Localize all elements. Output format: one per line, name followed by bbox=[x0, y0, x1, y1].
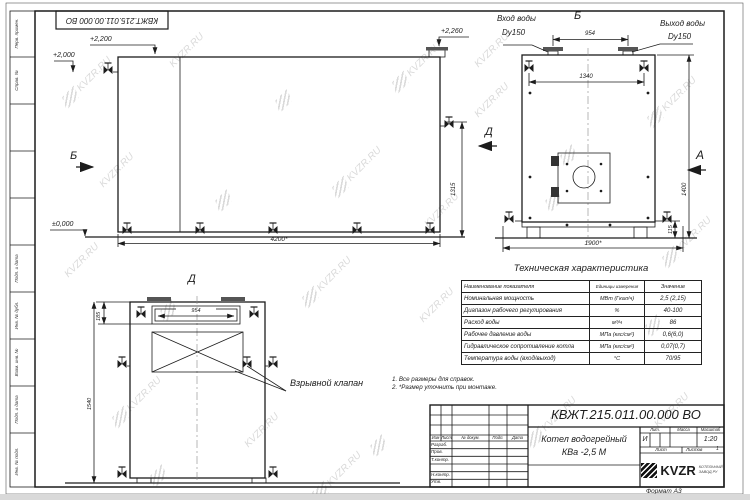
dim-1340: 1340 bbox=[561, 74, 611, 81]
dim-185: 185 bbox=[96, 312, 102, 321]
spec-header-cell: Наименование показателя bbox=[462, 281, 590, 293]
tb-row-tkontr: Т.контр. bbox=[431, 458, 449, 463]
section-label-b: Б bbox=[70, 150, 77, 162]
margin-label: Подп. и дата bbox=[14, 387, 19, 432]
spec-header-row: Наименование показателя Единицы измерени… bbox=[462, 281, 702, 293]
dim-1315: 1315 bbox=[451, 183, 458, 196]
elevation-2000: +2,000 bbox=[53, 52, 75, 60]
spec-cell: Диапазон рабочего регулирования bbox=[462, 305, 590, 317]
spec-row: Рабочее давление воды МПа (кгс/см²) 0,6(… bbox=[462, 329, 702, 341]
outlet-label-line2: Dy150 bbox=[668, 33, 691, 42]
dim-4200: 4200* bbox=[254, 236, 304, 243]
spec-row: Диапазон рабочего регулирования % 40-100 bbox=[462, 305, 702, 317]
spec-row: Температура воды (вход/выход) °С 70/95 bbox=[462, 353, 702, 365]
margin-label: Подп. и дата bbox=[14, 246, 19, 291]
spec-cell: 40-100 bbox=[645, 305, 702, 317]
note-1: 1. Все размеры для справок. bbox=[392, 377, 475, 384]
margin-label: Перв. примен. bbox=[14, 11, 19, 56]
spec-cell: Номинальная мощность bbox=[462, 293, 590, 305]
dim-115: 115 bbox=[668, 225, 674, 234]
kvzr-logo-subtext: КОТЕЛЬНЫЙ ЗАВОД.РУ bbox=[699, 465, 723, 474]
dim-954-rear: 954 bbox=[176, 308, 216, 314]
spec-cell: % bbox=[590, 305, 645, 317]
elevation-zero: ±0,000 bbox=[52, 221, 73, 229]
tb-row-razrab: Разраб. bbox=[431, 443, 447, 448]
dim-1900: 1900* bbox=[565, 240, 621, 247]
spec-row: Гидравлическое сопротивление котла МПа (… bbox=[462, 341, 702, 353]
title-block-doc-number: КВЖТ.215.011.00.000 ВО bbox=[528, 408, 724, 422]
dim-1540: 1540 bbox=[87, 398, 93, 410]
margin-label: Взам. инв. № bbox=[14, 340, 19, 385]
section-label-a: А bbox=[696, 149, 704, 162]
rear-view-title: Д bbox=[188, 273, 196, 285]
spec-cell: 70/95 bbox=[645, 353, 702, 365]
spec-cell: МВт (Гкал/ч) bbox=[590, 293, 645, 305]
spec-table: Наименование показателя Единицы измерени… bbox=[461, 280, 702, 365]
spec-cell: 0,6(6,0) bbox=[645, 329, 702, 341]
section-label-b-top: Б bbox=[574, 10, 581, 22]
kvzr-logo-icon bbox=[641, 463, 657, 478]
spec-cell: м³/ч bbox=[590, 317, 645, 329]
spec-cell: Расход воды bbox=[462, 317, 590, 329]
elevation-2200: +2,200 bbox=[90, 36, 112, 44]
spec-header-cell: Единицы измерения bbox=[590, 281, 645, 293]
product-name-line1: Котел водогрейный bbox=[529, 435, 639, 445]
tb-sheet-label: Лист bbox=[640, 448, 682, 453]
kvzr-logo: KVZR КОТЕЛЬНЫЙ ЗАВОД.РУ bbox=[641, 455, 723, 485]
tb-mass-label: Масса bbox=[670, 428, 697, 433]
tb-row-prov: Пров. bbox=[431, 450, 443, 455]
tb-scale-label: Масштаб bbox=[697, 428, 724, 433]
spec-cell: 86 bbox=[645, 317, 702, 329]
margin-label: Инв. № дубл. bbox=[14, 293, 19, 338]
tb-row-utv: Утв. bbox=[431, 480, 441, 485]
spec-row: Номинальная мощность МВт (Гкал/ч) 2,5 (2… bbox=[462, 293, 702, 305]
spec-cell: Рабочее давление воды bbox=[462, 329, 590, 341]
tb-scale-value: 1:20 bbox=[697, 436, 724, 444]
spec-cell: МПа (кгс/см²) bbox=[590, 341, 645, 353]
outlet-label-line1: Выход воды bbox=[660, 20, 705, 29]
elevation-2260: +2,260 bbox=[441, 28, 463, 36]
spec-cell: 2,5 (2,15) bbox=[645, 293, 702, 305]
explosion-valve-label: Взрывной клапан bbox=[290, 379, 363, 389]
drawing-sheet: KVZR.RUKVZR.RUKVZR.RUKVZR.RUKVZR.RUKVZR.… bbox=[0, 0, 750, 500]
product-name-line2: КВа -2,5 М bbox=[529, 448, 639, 458]
tb-sheets-value: 1 bbox=[716, 447, 719, 453]
tb-sheets-label: Листов bbox=[686, 448, 702, 453]
margin-label: Справ. № bbox=[14, 58, 19, 103]
spec-cell: Температура воды (вход/выход) bbox=[462, 353, 590, 365]
tb-lit-label: Лит. bbox=[640, 428, 670, 433]
kvzr-logo-sub1: КОТЕЛЬНЫЙ bbox=[699, 465, 723, 469]
tb-lit-value: И bbox=[640, 436, 650, 444]
tb-col-data: Дата bbox=[507, 436, 528, 441]
dim-954-side: 954 bbox=[565, 31, 615, 38]
tb-row-nkontr: Н.контр. bbox=[431, 473, 450, 478]
drawing-linework bbox=[0, 0, 750, 500]
spec-header-cell: Значение bbox=[645, 281, 702, 293]
inlet-label-line2: Dy150 bbox=[502, 29, 525, 38]
top-stamp-doc-number: КВЖТ.215.011.00.000 ВО bbox=[56, 12, 168, 28]
tb-col-podp: Подп. bbox=[489, 436, 507, 441]
spec-cell: °С bbox=[590, 353, 645, 365]
dim-1400: 1400 bbox=[682, 183, 689, 196]
tb-col-docnum: № докум. bbox=[452, 436, 489, 441]
spec-table-title: Техническая характеристика bbox=[461, 264, 701, 274]
view-label-d: Д bbox=[485, 126, 493, 138]
spec-cell: Гидравлическое сопротивление котла bbox=[462, 341, 590, 353]
kvzr-logo-sub2: ЗАВОД.РУ bbox=[699, 470, 718, 474]
kvzr-logo-text: KVZR bbox=[660, 463, 695, 478]
note-2: 2. *Размер уточнить при монтаже. bbox=[392, 385, 497, 392]
spec-cell: МПа (кгс/см²) bbox=[590, 329, 645, 341]
tb-col-list: Лист bbox=[441, 436, 452, 441]
page-edge bbox=[0, 494, 750, 500]
tb-col-izm: Изм bbox=[430, 436, 441, 441]
spec-row: Расход воды м³/ч 86 bbox=[462, 317, 702, 329]
margin-label: Инв. № подл. bbox=[14, 439, 19, 484]
inlet-label-line1: Вход воды bbox=[497, 15, 536, 24]
spec-cell: 0,07(0,7) bbox=[645, 341, 702, 353]
